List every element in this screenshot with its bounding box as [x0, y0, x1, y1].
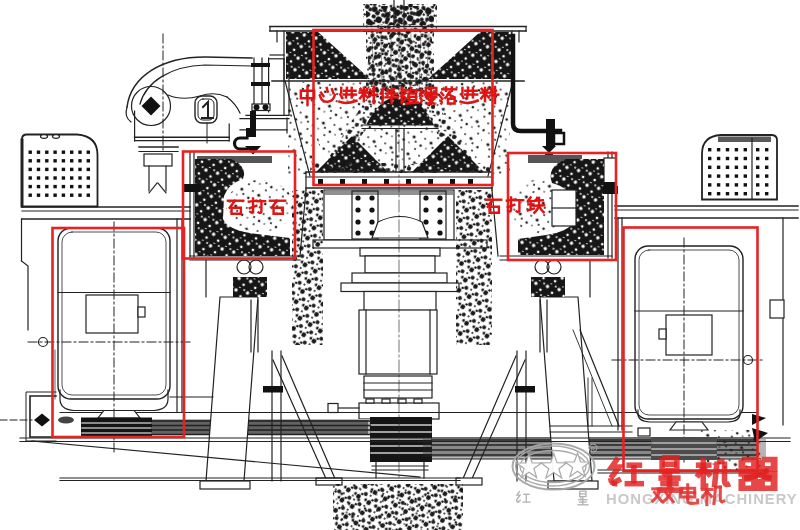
svg-text:R: R: [591, 446, 596, 452]
svg-text:HONGXING MACHINERY: HONGXING MACHINERY: [606, 491, 798, 507]
